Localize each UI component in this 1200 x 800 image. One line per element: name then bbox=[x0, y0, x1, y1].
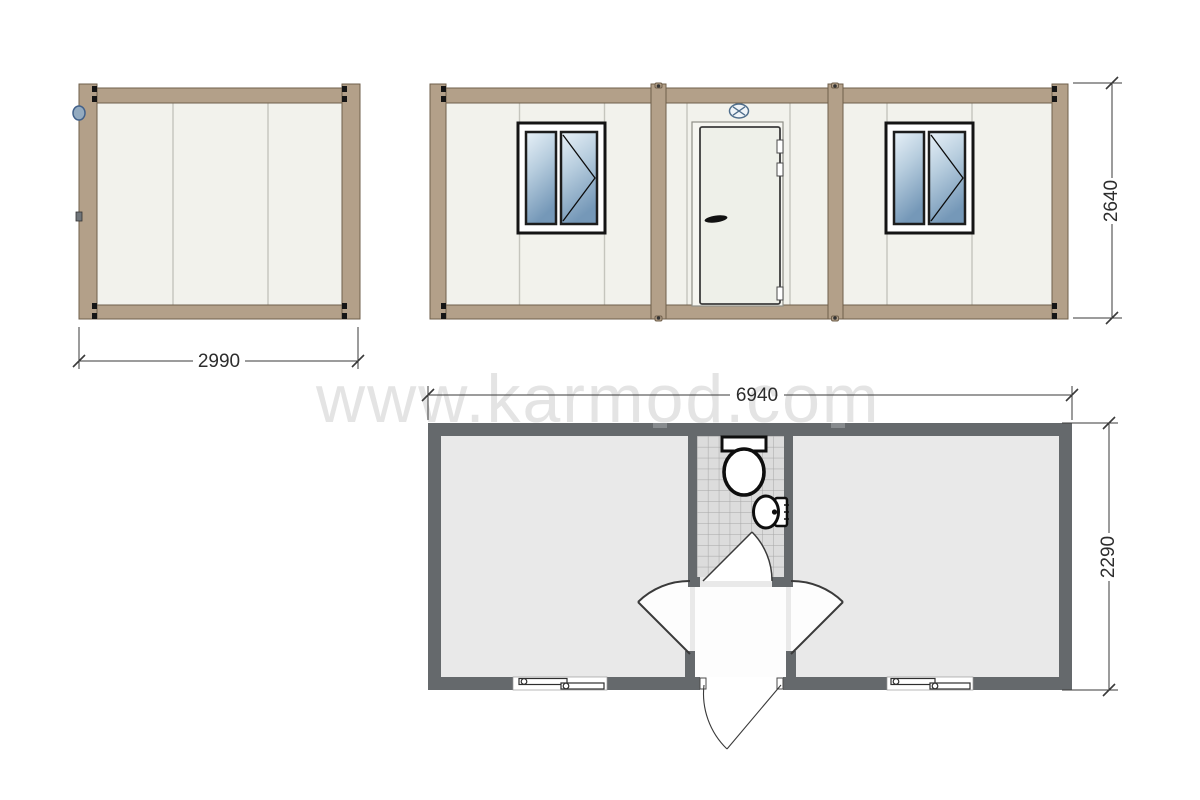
front-elevation-view: 2640 bbox=[430, 77, 1122, 324]
technical-drawing-canvas: www.karmod.com 2990 bbox=[0, 0, 1200, 800]
dimension-label: 2290 bbox=[1098, 536, 1119, 578]
toilet-icon bbox=[722, 437, 766, 495]
drawing-svg: www.karmod.com 2990 bbox=[0, 0, 1200, 800]
wall-bracket bbox=[76, 212, 82, 221]
middle-post bbox=[651, 84, 666, 319]
middle-post bbox=[828, 84, 843, 319]
sliding-window-icon bbox=[887, 677, 973, 690]
top-rail bbox=[430, 88, 1068, 103]
entry-door-icon bbox=[692, 122, 783, 306]
hallway-floor bbox=[695, 587, 786, 677]
casement-window-icon bbox=[518, 123, 605, 233]
dimension-label: 2990 bbox=[198, 351, 240, 372]
sink-icon bbox=[754, 496, 790, 528]
corner-post bbox=[342, 84, 360, 319]
dimension-label: 2640 bbox=[1101, 180, 1122, 222]
casement-window-icon bbox=[886, 123, 973, 233]
vent-fan-icon bbox=[730, 104, 749, 118]
side-wall-panel bbox=[97, 103, 342, 305]
corner-post bbox=[430, 84, 446, 319]
entry-door-opening bbox=[700, 677, 783, 690]
side-elevation-view: 2990 bbox=[73, 84, 364, 372]
top-rail bbox=[79, 88, 360, 103]
sliding-window-icon bbox=[513, 677, 607, 690]
dimension-label: 6940 bbox=[736, 385, 778, 406]
corner-post bbox=[1052, 84, 1068, 319]
floor-plan-view: 6940 2290 bbox=[422, 385, 1119, 749]
bottom-rail bbox=[79, 305, 360, 319]
entry-door-swing bbox=[704, 685, 781, 749]
bottom-rail bbox=[430, 305, 1068, 319]
lifting-hook-icon bbox=[73, 106, 85, 120]
dimension-front-height: 2640 bbox=[1073, 77, 1122, 324]
